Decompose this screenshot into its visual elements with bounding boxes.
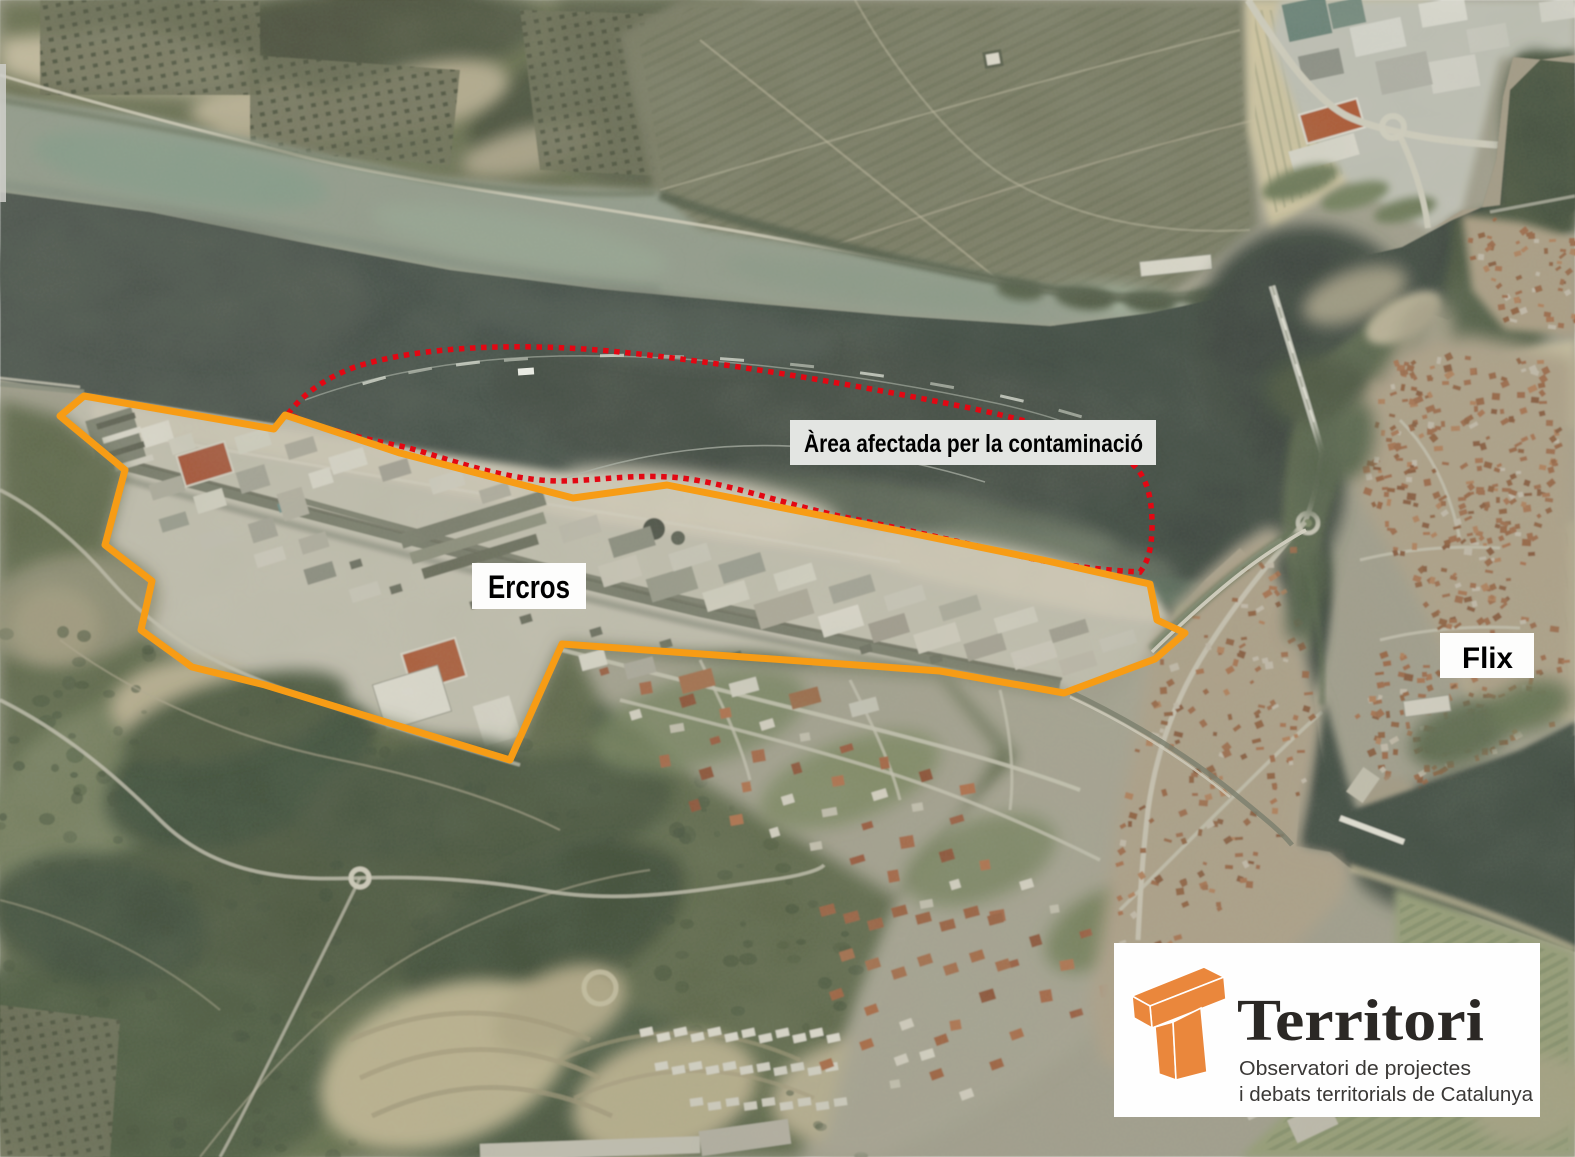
svg-text:Flix: Flix — [1462, 642, 1513, 675]
svg-text:Observatori de projectes: Observatori de projectes — [1239, 1057, 1471, 1080]
svg-text:Ercros: Ercros — [488, 569, 570, 605]
svg-text:Territori: Territori — [1237, 987, 1484, 1053]
svg-text:Àrea afectada per la contamina: Àrea afectada per la contaminació — [804, 429, 1143, 458]
svg-text:i debats territorials de Catal: i debats territorials de Catalunya — [1239, 1083, 1534, 1106]
